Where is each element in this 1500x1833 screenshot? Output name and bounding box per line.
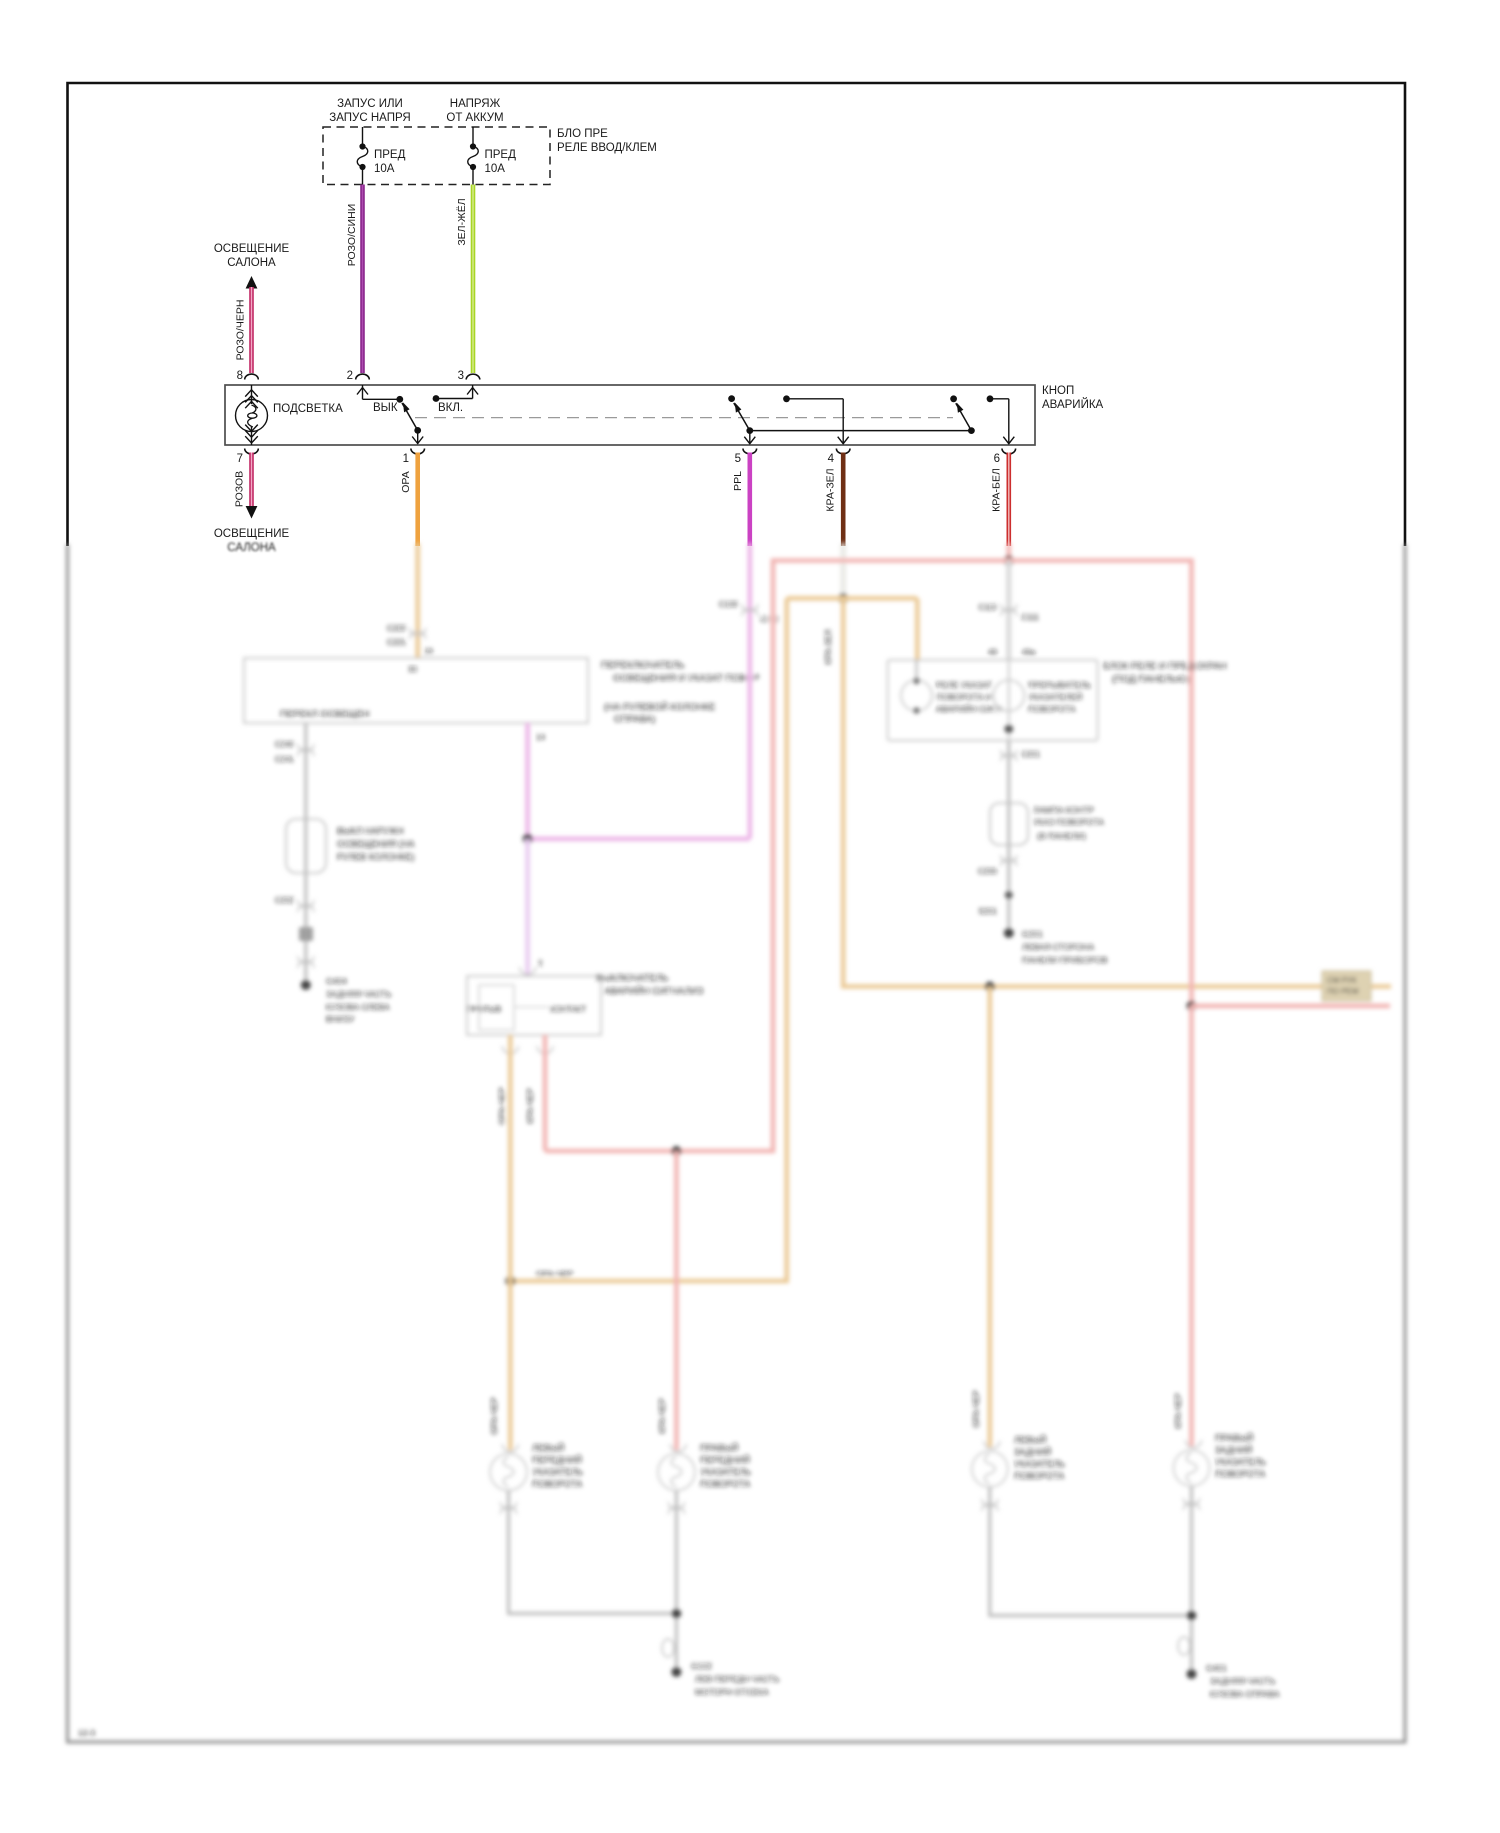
svg-text:ПАНЕЛИ ПРИБОРОВ: ПАНЕЛИ ПРИБОРОВ bbox=[1022, 955, 1108, 965]
svg-text:6: 6 bbox=[994, 453, 1000, 465]
svg-text:КРА-ЗЕЛ: КРА-ЗЕЛ bbox=[825, 468, 837, 511]
svg-text:ВНИЗУ: ВНИЗУ bbox=[326, 1014, 355, 1024]
svg-text:ЗАДНИЙ: ЗАДНИЙ bbox=[1014, 1446, 1051, 1457]
svg-text:ПО РЕМ: ПО РЕМ bbox=[1327, 987, 1359, 996]
svg-text:G102: G102 bbox=[691, 1661, 712, 1671]
svg-text:ПЕРЕДНИЙ: ПЕРЕДНИЙ bbox=[700, 1454, 750, 1465]
svg-text:ВЫК: ВЫК bbox=[373, 402, 398, 414]
svg-text:АВАРИЙКА: АВАРИЙКА bbox=[1042, 398, 1104, 411]
svg-text:ПРЕРЫВАТЕЛЬ: ПРЕРЫВАТЕЛЬ bbox=[1028, 680, 1091, 690]
svg-text:16: 16 bbox=[424, 647, 433, 656]
svg-text:ВКЛ.: ВКЛ. bbox=[438, 402, 463, 414]
svg-text:ОРА-ЧЕР: ОРА-ЧЕР bbox=[536, 1269, 574, 1279]
svg-text:КНОП: КНОП bbox=[1042, 385, 1074, 397]
svg-text:30: 30 bbox=[408, 665, 417, 674]
svg-text:КРА-ЗЕЛ: КРА-ЗЕЛ bbox=[823, 630, 833, 665]
svg-text:4: 4 bbox=[828, 453, 835, 465]
svg-text:С100: С100 bbox=[719, 600, 739, 609]
svg-text:ОСВЕЩЕНИЯ И УКАЗАТ ПОВОР: ОСВЕЩЕНИЯ И УКАЗАТ ПОВОР bbox=[613, 673, 759, 684]
svg-text:ОСВЕЩЕНИЕ: ОСВЕЩЕНИЕ bbox=[214, 243, 290, 255]
svg-text:РОЗО/СИНИ: РОЗО/СИНИ bbox=[346, 204, 358, 267]
svg-text:ЗАДНИЙ: ЗАДНИЙ bbox=[1215, 1444, 1252, 1455]
svg-text:G401: G401 bbox=[1206, 1663, 1227, 1673]
svg-text:УКАЗАТЕЛЕЙ: УКАЗАТЕЛЕЙ bbox=[1028, 691, 1082, 702]
svg-text:ОРА-ЧЕР: ОРА-ЧЕР bbox=[497, 1087, 507, 1125]
svg-text:КРА-ЧЕР: КРА-ЧЕР bbox=[657, 1398, 667, 1434]
svg-text:ЛЕВЫЙ: ЛЕВЫЙ bbox=[1014, 1434, 1046, 1445]
svg-text:РУЛЕВ КОЛОНКЕ): РУЛЕВ КОЛОНКЕ) bbox=[337, 852, 414, 862]
svg-text:РЕЛЕ УКАЗАТ: РЕЛЕ УКАЗАТ bbox=[936, 680, 992, 690]
svg-text:ПРЕД: ПРЕД bbox=[374, 149, 406, 161]
svg-text:С220: С220 bbox=[387, 624, 407, 633]
svg-text:МОТОРН ОТСЕКА: МОТОРН ОТСЕКА bbox=[695, 1687, 769, 1697]
svg-text:АВАРИЙН СИГНАЛИЗ: АВАРИЙН СИГНАЛИЗ bbox=[604, 985, 703, 997]
svg-text:КРА-ЧЕР: КРА-ЧЕР bbox=[525, 1088, 535, 1124]
svg-text:РОЗОВ: РОЗОВ bbox=[234, 471, 246, 507]
svg-text:САЛОНА: САЛОНА bbox=[227, 257, 276, 269]
svg-text:ЗАПУС НАПРЯ: ЗАПУС НАПРЯ bbox=[329, 112, 410, 124]
svg-text:ПОВОРОТА И: ПОВОРОТА И bbox=[936, 692, 992, 702]
svg-text:8: 8 bbox=[237, 370, 243, 382]
svg-text:2: 2 bbox=[538, 959, 543, 968]
svg-text:С221: С221 bbox=[387, 638, 407, 647]
svg-text:С241: С241 bbox=[275, 755, 295, 764]
svg-text:ПОДСВЕТКА: ПОДСВЕТКА bbox=[273, 403, 343, 415]
svg-text:ЛЕВ ПЕРЕДН ЧАСТЬ: ЛЕВ ПЕРЕДН ЧАСТЬ bbox=[695, 1674, 780, 1684]
svg-text:УКАЗ ПОВОРОТА: УКАЗ ПОВОРОТА bbox=[1033, 817, 1104, 827]
svg-text:С111: С111 bbox=[1021, 613, 1039, 622]
svg-text:СМ РУК: СМ РУК bbox=[1327, 976, 1357, 985]
svg-text:14: 14 bbox=[536, 733, 545, 742]
svg-text:49а: 49а bbox=[1022, 648, 1036, 657]
svg-text:ПЕРЕКЛ ОСВЕЩЕН: ПЕРЕКЛ ОСВЕЩЕН bbox=[280, 709, 369, 720]
svg-text:С200: С200 bbox=[978, 867, 998, 876]
svg-text:ЛЕВЫЙ: ЛЕВЫЙ bbox=[532, 1442, 564, 1453]
svg-text:ЛЕВАЯ СТОРОНА: ЛЕВАЯ СТОРОНА bbox=[1022, 942, 1094, 952]
svg-text:49: 49 bbox=[988, 648, 997, 657]
svg-text:ЛАМПА КОНТР: ЛАМПА КОНТР bbox=[1033, 805, 1094, 815]
svg-text:С202: С202 bbox=[275, 896, 295, 905]
svg-text:БЛО ПРЕ: БЛО ПРЕ bbox=[557, 128, 608, 140]
svg-text:ЗАДНЯЯ ЧАСТЬ: ЗАДНЯЯ ЧАСТЬ bbox=[1210, 1676, 1276, 1686]
svg-text:(НА РУЛЕВОЙ КОЛОНКЕ: (НА РУЛЕВОЙ КОЛОНКЕ bbox=[604, 701, 715, 713]
svg-text:УКАЗАТЕЛЬ: УКАЗАТЕЛЬ bbox=[532, 1467, 583, 1477]
svg-text:ОРА-ЧЕР: ОРА-ЧЕР bbox=[489, 1397, 499, 1435]
svg-text:ПРЕД: ПРЕД bbox=[485, 149, 517, 161]
svg-text:САЛОНА: САЛОНА bbox=[227, 542, 276, 554]
svg-text:ЗАПУС ИЛИ: ЗАПУС ИЛИ bbox=[337, 98, 403, 110]
svg-text:S201: S201 bbox=[978, 907, 997, 916]
svg-text:КУЗОВА СЛЕВА: КУЗОВА СЛЕВА bbox=[326, 1002, 390, 1012]
svg-text:ПОВОРОТА: ПОВОРОТА bbox=[1028, 704, 1076, 714]
svg-text:2: 2 bbox=[347, 370, 353, 382]
svg-text:КОНТАКТ: КОНТАКТ bbox=[550, 1005, 586, 1014]
svg-text:ПЕРЕКЛЮЧАТЕЛЬ: ПЕРЕКЛЮЧАТЕЛЬ bbox=[601, 660, 684, 671]
svg-text:ОСВЕЩЕНИЯ (НА: ОСВЕЩЕНИЯ (НА bbox=[337, 839, 414, 849]
svg-text:УКАЗАТЕЛЬ: УКАЗАТЕЛЬ bbox=[1014, 1459, 1065, 1469]
svg-text:ПОВОРОТА: ПОВОРОТА bbox=[532, 1479, 582, 1489]
svg-text:БЛОК РЕЛЕ И ПРЕДОХРАН: БЛОК РЕЛЕ И ПРЕДОХРАН bbox=[1103, 661, 1227, 672]
svg-text:ЗЕЛ-ЖЁЛ: ЗЕЛ-ЖЁЛ bbox=[456, 198, 468, 245]
svg-text:ПЕРЕДНИЙ: ПЕРЕДНИЙ bbox=[532, 1454, 582, 1465]
svg-text:PPL: PPL bbox=[732, 471, 744, 491]
svg-text:5: 5 bbox=[735, 453, 741, 465]
svg-text:3: 3 bbox=[458, 370, 464, 382]
svg-text:(В ПАНЕЛИ): (В ПАНЕЛИ) bbox=[1037, 831, 1086, 841]
svg-text:ПРАВЫЙ: ПРАВЫЙ bbox=[1215, 1432, 1253, 1443]
svg-text:10А: 10А bbox=[485, 163, 506, 175]
svg-text:ПОВОРОТА: ПОВОРОТА bbox=[1215, 1469, 1265, 1479]
svg-text:ВЫКЛЮЧАТЕЛЬ: ВЫКЛЮЧАТЕЛЬ bbox=[596, 973, 668, 984]
svg-text:НАПРЯЖ: НАПРЯЖ bbox=[450, 98, 501, 110]
svg-text:ОРА: ОРА bbox=[400, 471, 412, 492]
svg-text:КРА-БЕЛ: КРА-БЕЛ bbox=[991, 468, 1003, 512]
svg-text:G201: G201 bbox=[1022, 929, 1043, 939]
svg-text:ПРЕРЫВ: ПРЕРЫВ bbox=[467, 1005, 501, 1014]
svg-text:ПРАВЫЙ: ПРАВЫЙ bbox=[700, 1442, 738, 1453]
svg-text:УКАЗАТЕЛЬ: УКАЗАТЕЛЬ bbox=[700, 1467, 751, 1477]
svg-text:С110: С110 bbox=[978, 603, 997, 612]
svg-text:G404: G404 bbox=[326, 976, 347, 986]
svg-text:ЗАДНЯЯ ЧАСТЬ: ЗАДНЯЯ ЧАСТЬ bbox=[326, 989, 392, 999]
svg-text:С240: С240 bbox=[275, 740, 295, 749]
svg-text:10А: 10А bbox=[374, 163, 395, 175]
svg-text:ПОВОРОТА: ПОВОРОТА bbox=[1014, 1471, 1064, 1481]
svg-text:УКАЗАТЕЛЬ: УКАЗАТЕЛЬ bbox=[1215, 1457, 1266, 1467]
svg-text:12-3: 12-3 bbox=[78, 1728, 95, 1738]
svg-text:КРА-ЧЕР: КРА-ЧЕР bbox=[1173, 1393, 1183, 1429]
svg-text:С201: С201 bbox=[1021, 750, 1041, 759]
svg-text:ВЫКЛ НАРУЖН: ВЫКЛ НАРУЖН bbox=[337, 826, 403, 836]
svg-text:СПРАВА): СПРАВА) bbox=[614, 714, 655, 725]
svg-text:ОРА-ЧЕР: ОРА-ЧЕР bbox=[971, 1390, 981, 1428]
svg-text:РОЗО/ЧЕРН: РОЗО/ЧЕРН bbox=[235, 300, 247, 361]
svg-text:АВАРИЙН СИГН: АВАРИЙН СИГН bbox=[936, 703, 1002, 714]
svg-text:(ПОД ПАНЕЛЬЮ): (ПОД ПАНЕЛЬЮ) bbox=[1112, 674, 1190, 685]
svg-text:ОТ АККУМ: ОТ АККУМ bbox=[446, 112, 503, 124]
svg-text:КУЗОВА СПРАВА: КУЗОВА СПРАВА bbox=[1210, 1689, 1280, 1699]
svg-text:РЕЛЕ ВВОД/КЛЕМ: РЕЛЕ ВВОД/КЛЕМ bbox=[557, 142, 657, 154]
svg-text:ОСВЕЩЕНИЕ: ОСВЕЩЕНИЕ bbox=[214, 528, 290, 540]
svg-text:ПОВОРОТА: ПОВОРОТА bbox=[700, 1479, 750, 1489]
svg-text:1: 1 bbox=[403, 453, 409, 465]
svg-text:С202: С202 bbox=[760, 615, 780, 624]
svg-text:7: 7 bbox=[237, 453, 243, 465]
